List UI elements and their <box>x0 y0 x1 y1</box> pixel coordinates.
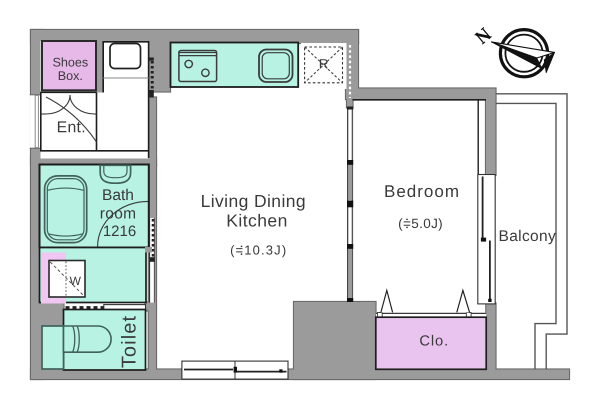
svg-text:Living Dining: Living Dining <box>201 191 306 211</box>
svg-text:Ent.: Ent. <box>57 119 86 136</box>
svg-text:Shoes: Shoes <box>52 56 88 70</box>
svg-text:Clo.: Clo. <box>419 334 449 350</box>
svg-text:(=10.3J): (=10.3J) <box>230 243 287 258</box>
svg-text:W: W <box>70 274 82 288</box>
svg-text:Bedroom: Bedroom <box>384 182 460 201</box>
svg-text:R: R <box>319 56 329 71</box>
svg-text:Balcony: Balcony <box>499 228 557 245</box>
svg-text:Box.: Box. <box>58 69 83 83</box>
svg-text:Toilet: Toilet <box>119 315 141 368</box>
svg-text:room: room <box>100 206 137 223</box>
svg-text:(=5.0J): (=5.0J) <box>398 216 443 231</box>
svg-text:Bath: Bath <box>102 187 134 204</box>
svg-text:1216: 1216 <box>103 223 136 240</box>
svg-text:Kitchen: Kitchen <box>226 210 288 230</box>
